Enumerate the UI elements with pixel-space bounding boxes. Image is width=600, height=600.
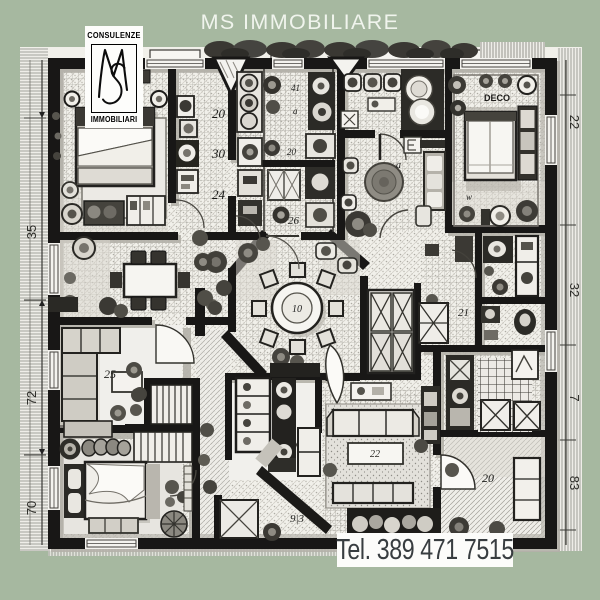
svg-text:7: 7 bbox=[567, 394, 582, 401]
svg-text:DECO: DECO bbox=[484, 93, 510, 103]
svg-text:20: 20 bbox=[212, 106, 226, 121]
svg-text:10: 10 bbox=[292, 304, 302, 315]
svg-text:20: 20 bbox=[482, 471, 494, 485]
svg-text:32: 32 bbox=[567, 283, 582, 297]
svg-text:9|3: 9|3 bbox=[290, 513, 305, 525]
svg-text:21: 21 bbox=[458, 307, 469, 319]
svg-text:72: 72 bbox=[24, 391, 39, 405]
svg-text:22: 22 bbox=[370, 449, 380, 460]
svg-text:24: 24 bbox=[212, 187, 226, 202]
svg-text:w: w bbox=[466, 192, 472, 202]
svg-text:20: 20 bbox=[287, 147, 297, 157]
svg-text:26: 26 bbox=[288, 215, 300, 227]
svg-text:41: 41 bbox=[291, 83, 300, 93]
svg-text:83: 83 bbox=[567, 476, 582, 490]
svg-text:a: a bbox=[396, 160, 401, 171]
svg-text:35: 35 bbox=[24, 225, 39, 239]
svg-text:25: 25 bbox=[104, 367, 116, 381]
svg-text:70: 70 bbox=[24, 501, 39, 515]
svg-text:22: 22 bbox=[567, 115, 582, 129]
svg-text:a: a bbox=[293, 106, 298, 116]
svg-text:30: 30 bbox=[211, 146, 226, 161]
